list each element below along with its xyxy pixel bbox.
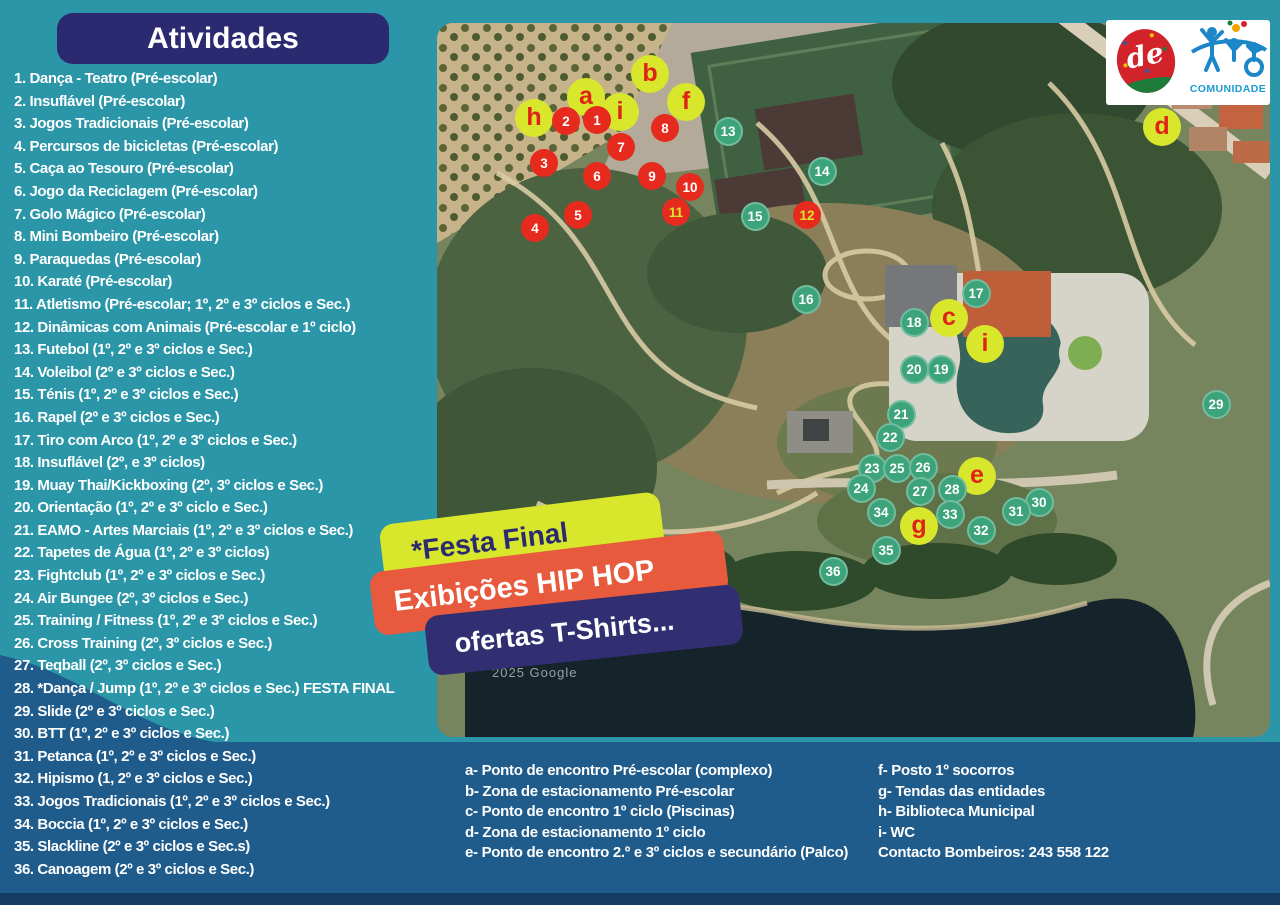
activity-item: 28. *Dança / Jump (1º, 2º e 3º ciclos e … — [14, 678, 444, 701]
desporto-escolar-logo: de — [1106, 20, 1186, 105]
de-logo-green-base — [1116, 73, 1181, 98]
activity-item: 16. Rapel (2º e 3º ciclos e Sec.) — [14, 407, 444, 430]
activity-item: 13. Futebol (1º, 2º e 3º ciclos e Sec.) — [14, 339, 444, 362]
bottom-accent-bar — [0, 893, 1280, 905]
comunidade-figures-icon — [1186, 20, 1270, 78]
activity-item: 12. Dinâmicas com Animais (Pré-escolar e… — [14, 317, 444, 340]
banner-tshirts-label: ofertas T-Shirts... — [453, 605, 676, 659]
activity-item: 18. Insuflável (2º, e 3º ciclos) — [14, 452, 444, 475]
legend-item: e- Ponto de encontro 2.º e 3º ciclos e s… — [465, 843, 848, 864]
activity-item: 2. Insuflável (Pré-escolar) — [14, 91, 444, 114]
legend-item: d- Zona de estacionamento 1º ciclo — [465, 823, 848, 844]
activity-item: 29. Slide (2º e 3º ciclos e Sec.) — [14, 701, 444, 724]
comunidade-label: COMUNIDADE — [1186, 83, 1270, 95]
legend-item: c- Ponto de encontro 1º ciclo (Piscinas) — [465, 802, 848, 823]
activity-item: 31. Petanca (1º, 2º e 3º ciclos e Sec.) — [14, 746, 444, 769]
activity-item: 3. Jogos Tradicionais (Pré-escolar) — [14, 113, 444, 136]
page-title: Atividades — [147, 22, 299, 56]
activity-item: 1. Dança - Teatro (Pré-escolar) — [14, 68, 444, 91]
activity-item: 11. Atletismo (Pré-escolar; 1º, 2º e 3º … — [14, 294, 444, 317]
activities-list: 1. Dança - Teatro (Pré-escolar)2. Insufl… — [14, 68, 444, 881]
activity-item: 34. Boccia (1º, 2º e 3º ciclos e Sec.) — [14, 814, 444, 837]
activity-item: 33. Jogos Tradicionais (1º, 2º e 3º cicl… — [14, 791, 444, 814]
legend-item: f- Posto 1º socorros — [878, 761, 1109, 782]
activity-item: 14. Voleibol (2º e 3º ciclos e Sec.) — [14, 362, 444, 385]
activity-item: 36. Canoagem (2º e 3º ciclos e Sec.) — [14, 859, 444, 882]
activity-item: 22. Tapetes de Água (1º, 2º e 3º ciclos) — [14, 542, 444, 565]
activity-item: 32. Hipismo (1, 2º e 3º ciclos e Sec.) — [14, 768, 444, 791]
activity-item: 26. Cross Training (2º, 3º ciclos e Sec.… — [14, 633, 444, 656]
activity-item: 27. Teqball (2º, 3º ciclos e Sec.) — [14, 655, 444, 678]
legend-item: a- Ponto de encontro Pré-escolar (comple… — [465, 761, 848, 782]
activity-item: 35. Slackline (2º e 3º ciclos e Sec.s) — [14, 836, 444, 859]
activity-item: 9. Paraquedas (Pré-escolar) — [14, 249, 444, 272]
activity-item: 4. Percursos de bicicletas (Pré-escolar) — [14, 136, 444, 159]
activities-header: Atividades — [57, 13, 389, 64]
legend-item: b- Zona de estacionamento Pré-escolar — [465, 782, 848, 803]
legend-item: i- WC — [878, 823, 1109, 844]
activity-item: 6. Jogo da Reciclagem (Pré-escolar) — [14, 181, 444, 204]
legend-item: h- Biblioteca Municipal — [878, 802, 1109, 823]
activity-item: 8. Mini Bombeiro (Pré-escolar) — [14, 226, 444, 249]
logo-box: de COMUNIDADE — [1106, 20, 1270, 105]
activity-item: 19. Muay Thai/Kickboxing (2º, 3º ciclos … — [14, 475, 444, 498]
legend-left-column: a- Ponto de encontro Pré-escolar (comple… — [465, 761, 848, 864]
legend-item: g- Tendas das entidades — [878, 782, 1109, 803]
activity-item: 7. Golo Mágico (Pré-escolar) — [14, 204, 444, 227]
de-logo-dot — [1145, 69, 1150, 74]
activity-item: 10. Karaté (Pré-escolar) — [14, 271, 444, 294]
flyer-page: { "colors": { "bg_teal": "#2a96a8", "bg_… — [0, 0, 1280, 905]
activity-item: 20. Orientação (1º, 2º e 3º ciclo e Sec.… — [14, 497, 444, 520]
comunidade-logo: COMUNIDADE — [1186, 20, 1270, 105]
activity-item: 5. Caça ao Tesouro (Pré-escolar) — [14, 158, 444, 181]
activity-item: 15. Ténis (1º, 2º e 3º ciclos e Sec.) — [14, 384, 444, 407]
activity-item: 17. Tiro com Arco (1º, 2º e 3º ciclos e … — [14, 430, 444, 453]
activity-item: 30. BTT (1º, 2º e 3º ciclos e Sec.) — [14, 723, 444, 746]
de-logo-oval: de — [1111, 24, 1181, 99]
legend-right-column: f- Posto 1º socorrosg- Tendas das entida… — [878, 761, 1109, 864]
legend-item: Contacto Bombeiros: 243 558 122 — [878, 843, 1109, 864]
